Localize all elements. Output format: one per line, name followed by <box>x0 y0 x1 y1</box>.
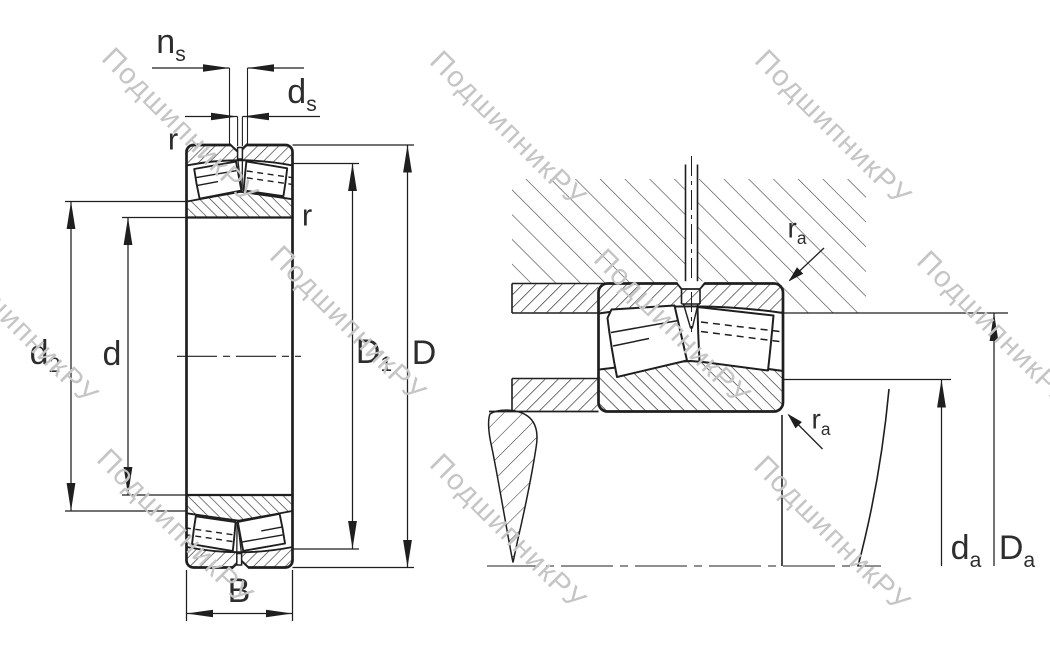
dim-label-D1: D1 <box>356 335 392 375</box>
dim-label-ns: ns <box>156 25 185 65</box>
dim-label-d2: d2 <box>30 336 61 376</box>
dim-label-da: da <box>951 531 982 571</box>
technical-drawing <box>0 0 1050 650</box>
shaft-shoulder-curve <box>858 389 889 566</box>
bearing-drawing-page: ns ds r r d2 d D1 D B ra ra da Da Подшип… <box>0 0 1050 650</box>
cover-hatch <box>512 284 598 312</box>
left-view-cross-section <box>177 143 301 570</box>
dim-label-r-inner: r <box>302 200 312 231</box>
dim-label-ds: ds <box>287 75 316 115</box>
right-view-mounted <box>487 156 1008 566</box>
dim-label-B: B <box>228 574 251 608</box>
dim-label-d: d <box>103 337 122 371</box>
shaft-shoulder-section <box>489 410 537 562</box>
dim-label-Da: Da <box>999 531 1035 571</box>
shaft-hatch <box>512 379 598 411</box>
dim-label-r-outer: r <box>168 124 178 155</box>
dim-label-ra-bottom: ra <box>812 406 831 439</box>
dim-label-ra-top: ra <box>788 215 807 248</box>
dim-label-D: D <box>412 336 437 370</box>
